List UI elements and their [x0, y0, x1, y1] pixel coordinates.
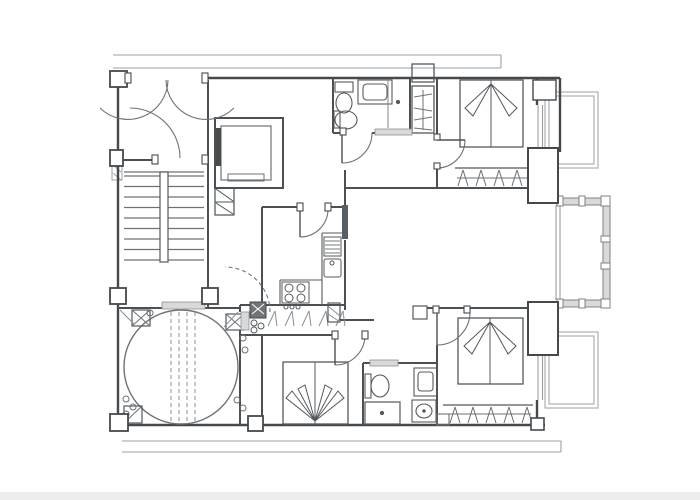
gallery-window-hatch-shape	[268, 311, 275, 326]
apartment-floor-plan-drawing	[0, 0, 700, 500]
elevator-door	[216, 128, 221, 166]
floor-plan-page	[0, 0, 700, 500]
door-jamb	[362, 331, 368, 339]
beds-shape	[464, 322, 490, 354]
toilet-tank-2	[365, 374, 371, 398]
bedroom-1-door-arc	[437, 140, 465, 168]
duct-top-right	[533, 80, 556, 100]
railing-right	[603, 198, 610, 307]
kitchen	[250, 233, 345, 333]
interior-walls	[118, 78, 537, 425]
round-room-shape	[130, 404, 136, 410]
gallery-window-hatch-shape	[319, 311, 326, 326]
shower-drain-2	[380, 411, 383, 414]
sliding-door-pocket	[342, 205, 348, 239]
door-jamb	[433, 306, 439, 313]
beds-shape	[491, 84, 517, 116]
kitchen-shape	[285, 284, 293, 292]
toilet-tank	[335, 82, 353, 92]
doors	[100, 80, 470, 365]
sill-gallery	[241, 312, 249, 330]
duct-top	[412, 64, 434, 82]
round-room-shape	[242, 347, 248, 353]
terrace-railing-shape	[579, 299, 585, 308]
pier-terrace-bottom	[528, 302, 558, 355]
stair-stringer	[160, 172, 168, 262]
kitchen-shape	[285, 294, 293, 302]
staircase	[124, 172, 204, 262]
kitchen-shape	[297, 284, 305, 292]
washbasin	[363, 84, 387, 100]
door-jamb	[434, 134, 440, 140]
closets-shape	[455, 407, 460, 423]
kitchen-shape	[251, 320, 257, 326]
terrace-railing-shape	[601, 263, 610, 269]
balconies	[545, 92, 598, 408]
pier	[248, 416, 263, 431]
exterior-walls	[118, 78, 560, 425]
duct-square	[413, 306, 427, 319]
beds-shape	[490, 322, 516, 354]
closets-shape	[522, 407, 527, 423]
shower-drain	[396, 100, 399, 103]
closets-shape	[486, 407, 491, 423]
toilet-bowl	[336, 93, 352, 113]
gallery-window-hatch-shape	[309, 311, 311, 326]
door-jamb	[464, 306, 470, 313]
door-jamb	[125, 73, 131, 83]
bedroom-3-door-arc	[437, 312, 470, 345]
bathroom-bottom-fixtures-shape	[423, 410, 425, 412]
closets-shape	[509, 407, 514, 423]
gallery-window-hatch	[268, 303, 427, 326]
gallery-window-hatch-shape	[292, 311, 294, 326]
bedroom-2-door-arc	[335, 335, 365, 365]
closets	[412, 64, 537, 423]
beds-shape	[465, 84, 491, 116]
pier	[202, 288, 218, 304]
entry-door-right-arc	[166, 80, 234, 119]
kitchen-shape	[330, 261, 334, 265]
terrace-railing	[557, 196, 610, 308]
door-jamb	[152, 155, 158, 164]
round-room	[120, 310, 248, 424]
bathroom-1-door-arc	[342, 133, 372, 163]
door-jamb	[340, 128, 346, 135]
door-jamb	[325, 203, 331, 211]
terrace-railing-shape	[601, 196, 610, 206]
closets-shape	[491, 407, 496, 423]
round-room-shape	[123, 396, 129, 402]
terrace-railing-shape	[601, 299, 610, 308]
door-jamb	[297, 203, 303, 211]
pier	[110, 71, 127, 87]
kitchen-sink	[324, 259, 341, 277]
pier	[110, 414, 128, 431]
gallery-window-hatch-shape	[328, 314, 340, 322]
toilet-bowl-2	[371, 375, 389, 397]
closets-shape	[450, 407, 455, 423]
thresholds	[162, 129, 412, 366]
kitchen-shape	[258, 323, 264, 329]
gallery-window-hatch-shape	[275, 311, 277, 326]
gallery-window-hatch-shape	[285, 311, 292, 326]
elevator	[215, 118, 283, 215]
terrace-railing-shape	[579, 196, 585, 206]
elevator-shape	[216, 203, 233, 214]
gallery-window-hatch-shape	[302, 311, 309, 326]
closets-shape	[473, 407, 478, 423]
gallery-window-hatch-shape	[343, 311, 345, 326]
sill-bathroom-bottom	[370, 360, 398, 366]
sill-bathroom-top	[375, 129, 412, 135]
bathroom-top-fixtures	[334, 80, 400, 129]
elevator-shaft	[215, 118, 283, 188]
door-jamb	[434, 163, 440, 169]
bidet	[335, 111, 357, 129]
screen-bottom-strip	[0, 492, 700, 500]
closets-shape	[468, 407, 473, 423]
kitchen-shape	[251, 327, 257, 333]
pier-terrace-top	[528, 148, 558, 203]
closets-shape	[504, 407, 509, 423]
elevator-shape	[216, 189, 233, 201]
vestibule-door-arc	[130, 108, 180, 158]
bathroom-bottom-fixtures-shape	[418, 372, 433, 391]
pier	[110, 150, 123, 166]
door-jamb	[202, 155, 208, 164]
bathroom-bottom-fixtures-shape	[437, 414, 449, 425]
door-jamb	[332, 331, 338, 339]
door-jamb	[202, 73, 208, 83]
gallery-window-hatch-shape	[328, 306, 340, 316]
kitchen-shape	[297, 294, 305, 302]
sill-stair	[162, 302, 205, 309]
pier	[110, 288, 126, 304]
terrace-railing-shape	[601, 236, 610, 242]
bottom-edge-strip	[0, 492, 700, 500]
sliding-door	[342, 205, 348, 239]
elevator-cabin	[221, 126, 271, 180]
pier	[531, 418, 544, 430]
